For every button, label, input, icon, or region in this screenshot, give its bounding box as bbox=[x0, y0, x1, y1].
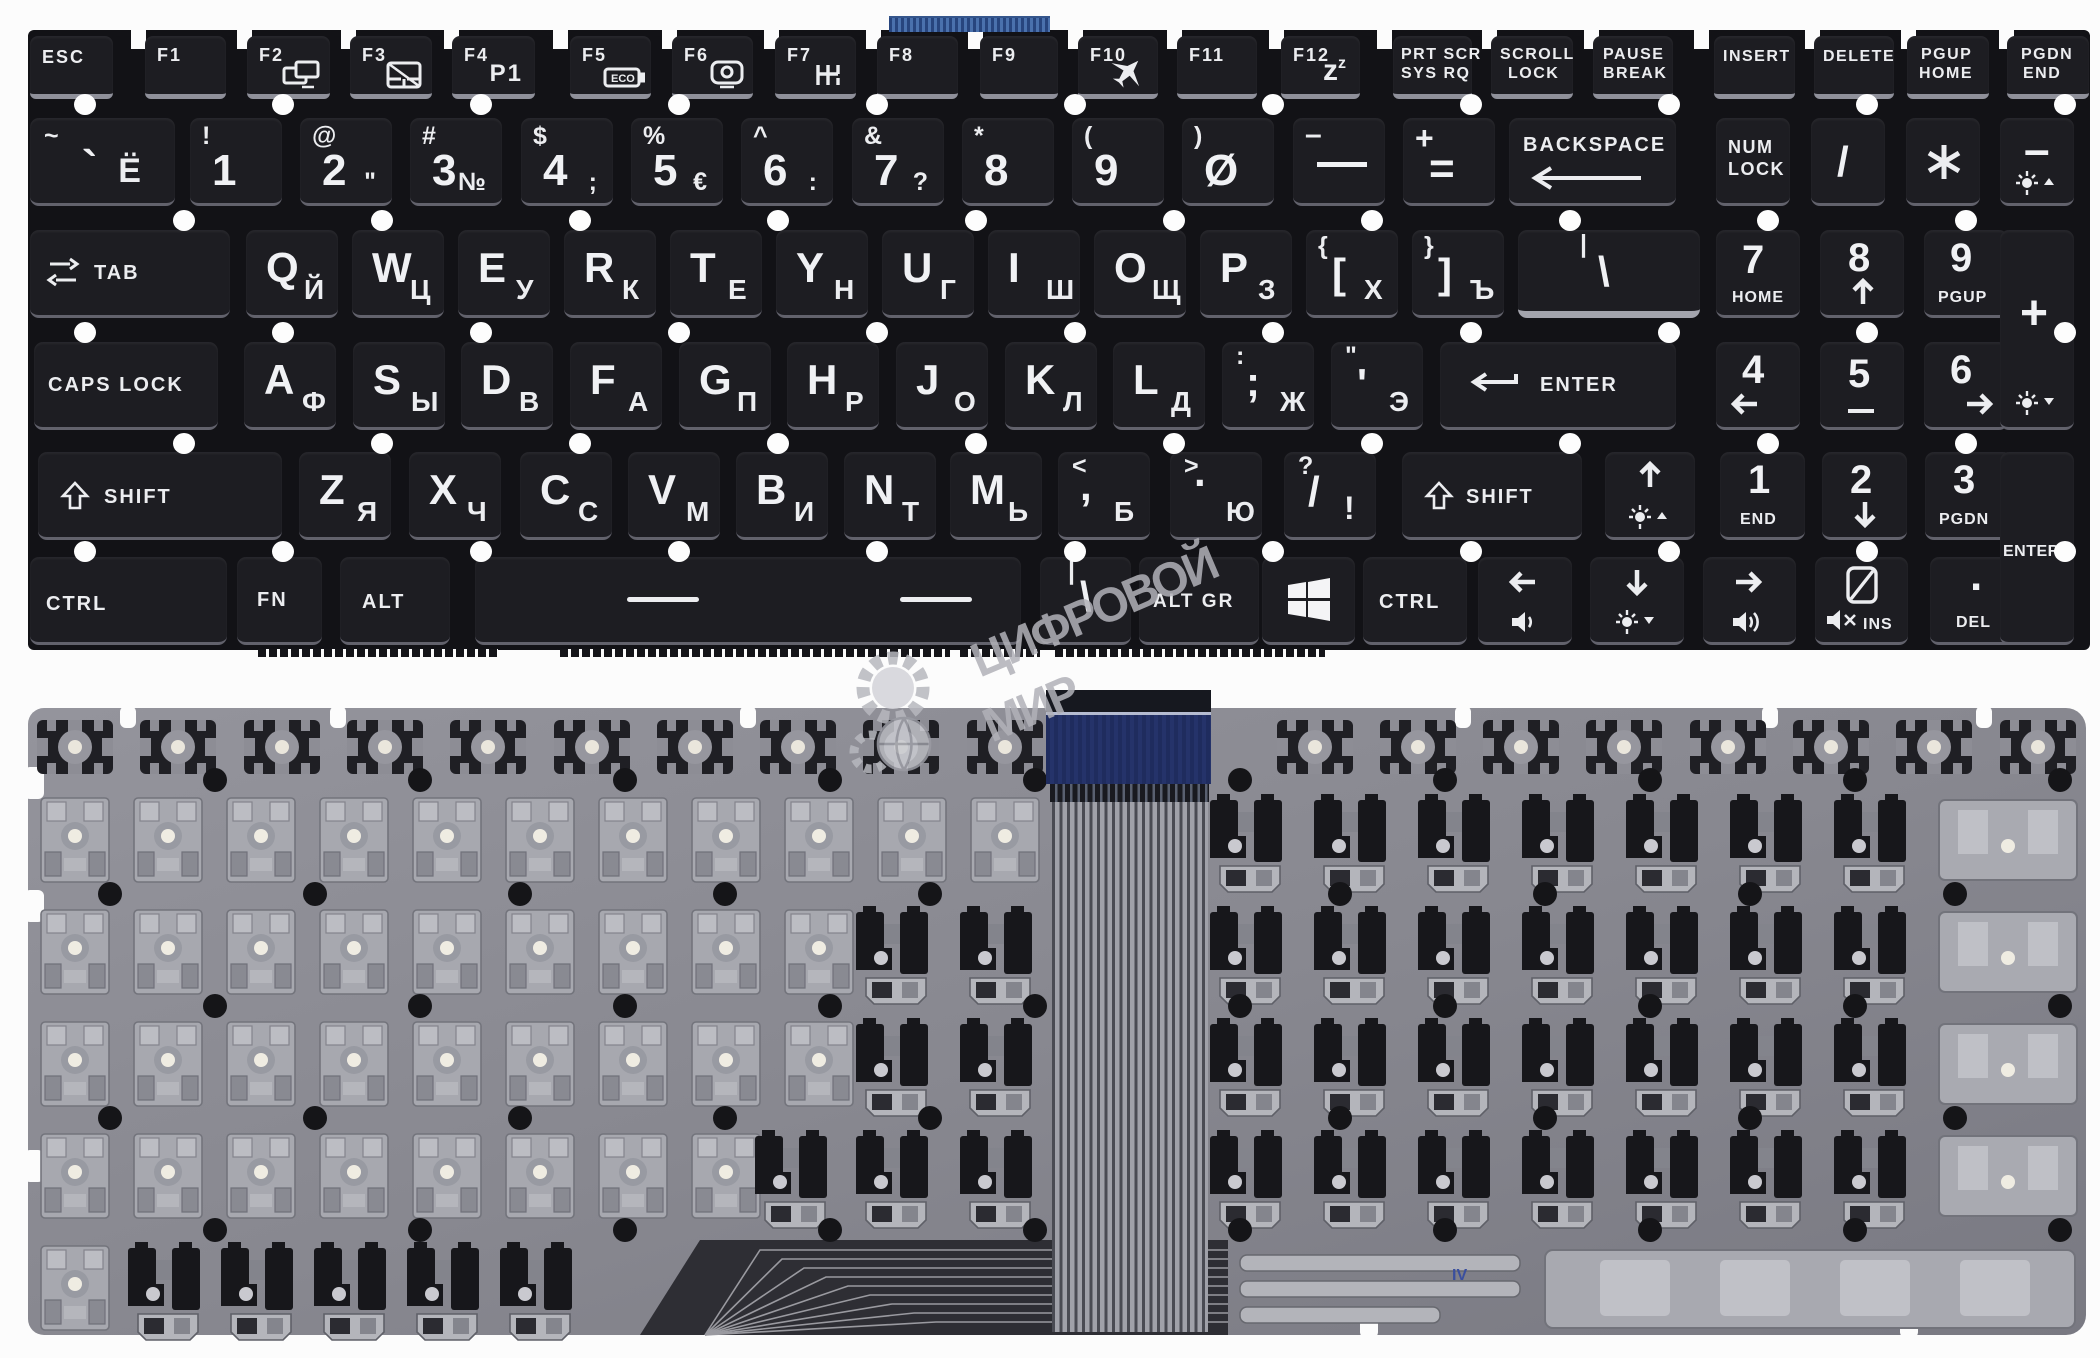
svg-text:ECO: ECO bbox=[611, 73, 635, 85]
svg-text:IV: IV bbox=[1452, 1267, 1467, 1284]
